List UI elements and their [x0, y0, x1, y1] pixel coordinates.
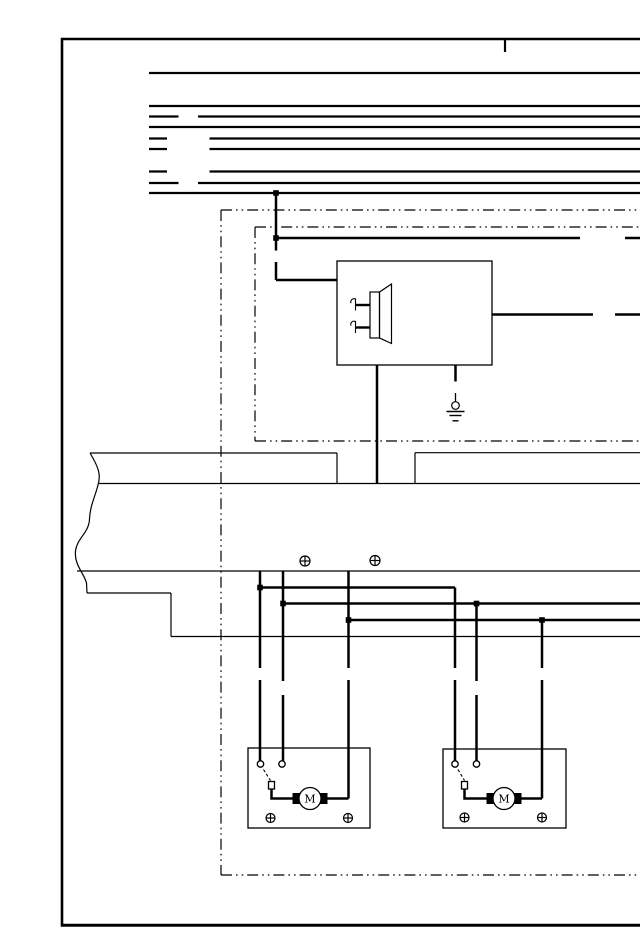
horn-unit-outline — [337, 261, 492, 365]
wavy-break-line — [75, 453, 99, 593]
door-motor-unit-left: M — [248, 748, 370, 828]
horn-speaker-icon — [351, 284, 392, 344]
circled-plus-bolt-icon — [538, 813, 547, 822]
unit-bolts — [266, 814, 353, 823]
filled-square-junction — [273, 190, 279, 196]
horn-output-wires — [377, 315, 640, 484]
door-motor-unit-right: M — [443, 749, 566, 828]
motor-circle-icon: M — [293, 788, 328, 810]
harness-boundary-outer — [221, 210, 640, 875]
open-circle-contact — [452, 761, 458, 767]
filled-square-junction — [539, 617, 545, 623]
filled-square-junction — [280, 601, 286, 607]
ground-eyelet — [452, 402, 460, 410]
terminal-pin-icon — [351, 299, 356, 311]
wiring-diagram-page: M M — [0, 0, 640, 950]
switch-pole-contact — [269, 782, 275, 790]
panel-bolts — [300, 556, 380, 567]
body-panel-outline — [75, 453, 640, 637]
horn-unit-box — [337, 261, 492, 365]
circled-plus-bolt-icon — [266, 814, 275, 823]
switch-pole-contact — [462, 782, 468, 790]
switch-lever-dashed — [264, 770, 271, 781]
wiring-diagram-canvas: M M — [0, 0, 640, 950]
unit-bolts — [460, 813, 547, 822]
circled-plus-bolt-icon — [460, 813, 469, 822]
motor-circle-icon: M — [487, 788, 522, 810]
terminal-pin-icon — [351, 321, 356, 333]
motor-label: M — [304, 793, 315, 806]
filled-square-junction — [474, 601, 480, 607]
circled-plus-bolt-icon — [300, 556, 310, 566]
switch-lever-dashed — [458, 770, 465, 781]
top-bus-lines — [149, 73, 640, 193]
motor-label: M — [498, 793, 509, 806]
filled-square-junction — [346, 617, 352, 623]
circled-plus-bolt-icon — [344, 814, 353, 823]
harness-boundary-inner — [255, 227, 640, 441]
open-circle-contact — [473, 761, 479, 767]
speaker-flare — [380, 284, 392, 344]
pole-to-motor-wire — [272, 789, 293, 799]
door-harness-wires — [260, 571, 640, 799]
chassis-ground-icon — [447, 393, 465, 421]
circled-plus-bolt-icon — [370, 556, 380, 566]
filled-square-junction — [257, 585, 263, 591]
speaker-body — [370, 292, 380, 338]
open-circle-contact — [257, 761, 263, 767]
pole-to-motor-wire — [465, 789, 487, 799]
filled-square-junction — [273, 235, 279, 241]
horn-feed-wires — [276, 193, 640, 280]
open-circle-contact — [279, 761, 285, 767]
